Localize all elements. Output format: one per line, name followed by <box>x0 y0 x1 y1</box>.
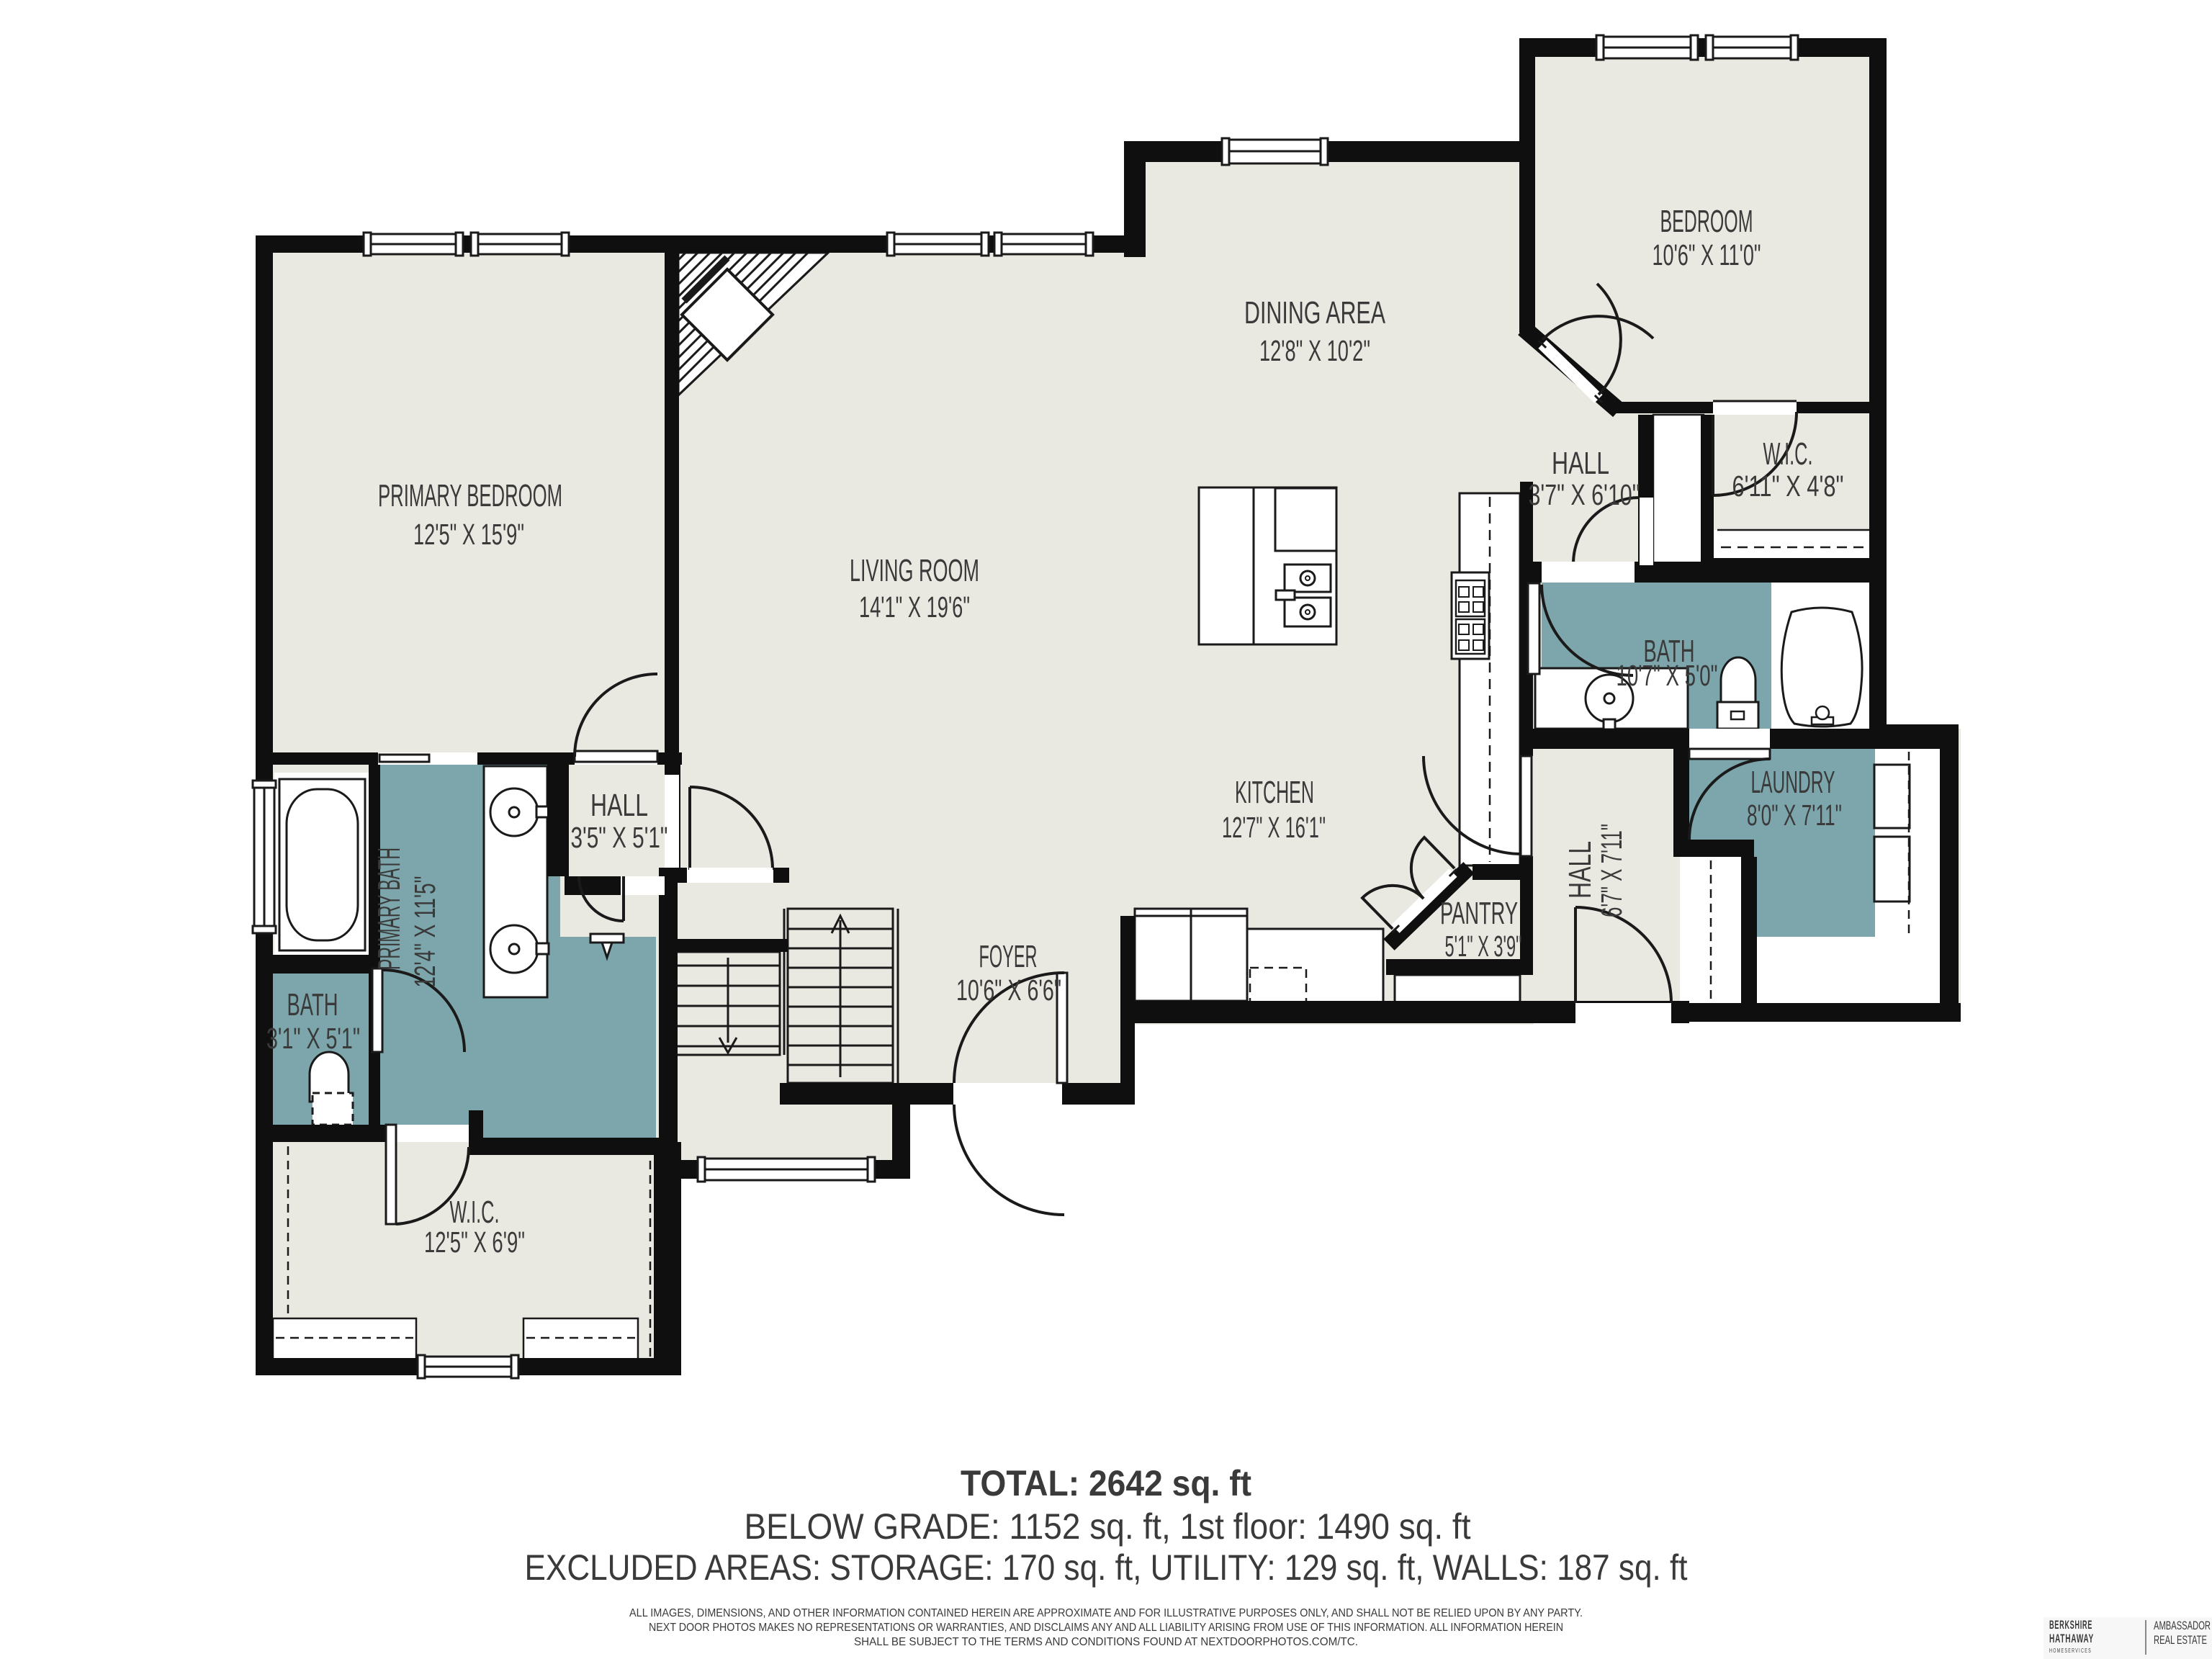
svg-text:NEXT DOOR PHOTOS MAKES NO REPR: NEXT DOOR PHOTOS MAKES NO REPRESENTATION… <box>649 1622 1563 1634</box>
svg-text:12'8" X 10'2": 12'8" X 10'2" <box>1259 334 1370 367</box>
svg-text:PRIMARY BEDROOM: PRIMARY BEDROOM <box>378 478 562 513</box>
svg-text:12'4" X 11'5": 12'4" X 11'5" <box>408 876 441 988</box>
svg-text:TOTAL: 2642 sq. ft: TOTAL: 2642 sq. ft <box>961 1463 1251 1503</box>
svg-text:AMBASSADOR: AMBASSADOR <box>2154 1619 2211 1632</box>
svg-text:12'5" X 15'9": 12'5" X 15'9" <box>413 518 524 551</box>
svg-text:3'5" X 5'1": 3'5" X 5'1" <box>571 821 668 854</box>
svg-text:HATHAWAY: HATHAWAY <box>2049 1632 2094 1645</box>
svg-text:LIVING ROOM: LIVING ROOM <box>850 553 979 588</box>
svg-text:DINING AREA: DINING AREA <box>1244 295 1385 331</box>
svg-text:W.I.C.: W.I.C. <box>450 1195 500 1230</box>
svg-text:5'1" X 3'9": 5'1" X 3'9" <box>1445 930 1522 963</box>
svg-text:12'7" X 16'1": 12'7" X 16'1" <box>1222 811 1326 844</box>
svg-text:BELOW GRADE: 1152 sq. ft, 1st: BELOW GRADE: 1152 sq. ft, 1st floor: 149… <box>745 1506 1471 1547</box>
svg-text:KITCHEN: KITCHEN <box>1235 775 1314 810</box>
svg-text:6'7" X 7'11": 6'7" X 7'11" <box>1595 824 1628 917</box>
svg-text:REAL ESTATE: REAL ESTATE <box>2154 1633 2207 1647</box>
svg-text:8'0" X 7'11": 8'0" X 7'11" <box>1747 799 1842 832</box>
svg-text:SHALL BE SUBJECT TO THE TERMS: SHALL BE SUBJECT TO THE TERMS AND CONDIT… <box>854 1636 1358 1648</box>
svg-text:LAUNDRY: LAUNDRY <box>1751 765 1835 800</box>
svg-text:BEDROOM: BEDROOM <box>1660 204 1753 239</box>
svg-text:6'11" X 4'8": 6'11" X 4'8" <box>1732 469 1844 503</box>
svg-text:10'6" X 6'6": 10'6" X 6'6" <box>956 974 1061 1007</box>
svg-text:HALL: HALL <box>1552 446 1609 481</box>
svg-text:ALL IMAGES, DIMENSIONS, AND OT: ALL IMAGES, DIMENSIONS, AND OTHER INFORM… <box>629 1607 1583 1619</box>
svg-text:PANTRY: PANTRY <box>1440 896 1518 931</box>
svg-text:HALL: HALL <box>1563 841 1598 899</box>
svg-text:3'7" X 6'10": 3'7" X 6'10" <box>1529 478 1640 511</box>
svg-text:HALL: HALL <box>590 788 648 823</box>
svg-text:HOMESERVICES: HOMESERVICES <box>2049 1647 2092 1654</box>
svg-text:BERKSHIRE: BERKSHIRE <box>2049 1618 2092 1632</box>
svg-text:10'6" X 11'0": 10'6" X 11'0" <box>1653 238 1761 271</box>
svg-text:14'1" X 19'6": 14'1" X 19'6" <box>859 590 970 624</box>
svg-text:3'1" X 5'1": 3'1" X 5'1" <box>266 1022 360 1055</box>
svg-text:PRIMARY BATH: PRIMARY BATH <box>372 848 407 970</box>
svg-text:W.I.C.: W.I.C. <box>1763 436 1813 472</box>
svg-text:10'7" X 5'0": 10'7" X 5'0" <box>1617 659 1718 692</box>
svg-text:BATH: BATH <box>287 987 338 1022</box>
svg-text:12'5" X 6'9": 12'5" X 6'9" <box>424 1226 525 1259</box>
svg-text:FOYER: FOYER <box>979 939 1038 974</box>
svg-text:EXCLUDED AREAS: STORAGE: 170 s: EXCLUDED AREAS: STORAGE: 170 sq. ft, UTI… <box>525 1547 1688 1588</box>
